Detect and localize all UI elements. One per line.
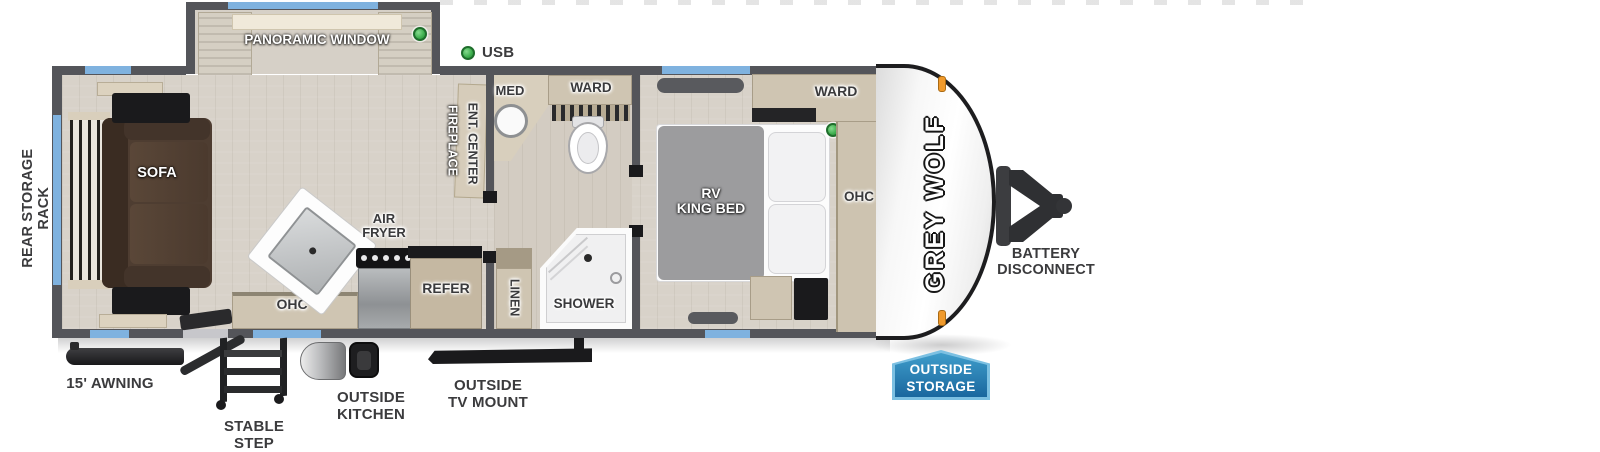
sofa-back [102, 118, 128, 288]
outside-tv-mount-label: OUTSIDE TV MOUNT [436, 378, 540, 412]
bottom-wall-right [228, 329, 890, 338]
refer-label: REFER [411, 281, 481, 296]
window-bottom-kitchen [253, 330, 321, 338]
sofa-label: SOFA [102, 166, 212, 181]
step-tread [224, 386, 282, 393]
entry-door-threshold [183, 329, 228, 338]
bedroom-shelf-bottom [688, 312, 738, 324]
usb-legend-dot [461, 46, 475, 60]
step-wheel [216, 400, 226, 410]
stable-step-label: STABLE STEP [204, 419, 304, 452]
case-inner [357, 351, 371, 370]
usb-legend-label: USB [482, 45, 522, 62]
bed-pillow-bottom [768, 204, 826, 274]
toilet-seat [577, 132, 599, 164]
bath-wall-left-lower [486, 263, 494, 329]
bath-wall-right-lower [632, 237, 640, 329]
bed-label-line1: RV [662, 186, 760, 201]
bath-ward-label: WARD [556, 81, 626, 95]
slideout-window [228, 2, 378, 9]
med-label: MED [486, 84, 534, 98]
burner [361, 255, 367, 261]
step-tread [224, 368, 282, 375]
hitch-tongue [994, 164, 1074, 248]
outside-tv-line2: TV MOUNT [436, 395, 540, 412]
outside-kitchen-label: OUTSIDE KITCHEN [308, 390, 434, 424]
bed-pillow-top [768, 132, 826, 202]
sofa-cushion-bottom [130, 204, 208, 264]
brand-logo: GREY WOLF [921, 93, 951, 313]
refer-countertop [408, 246, 482, 258]
window-bottom-rear [90, 330, 129, 338]
window-top-bedroom [662, 66, 750, 74]
bed-label-line2: KING BED [662, 201, 760, 216]
outside-kitchen-griddle [300, 342, 346, 380]
oven-front [358, 268, 414, 329]
outside-storage-badge: OUTSIDE STORAGE [892, 350, 990, 400]
battery-line2: DISCONNECT [996, 262, 1096, 278]
burner [394, 255, 400, 261]
air-fryer-line2: FRYER [348, 226, 420, 240]
bedroom-ward-label: WARD [800, 84, 872, 99]
linen-counter [496, 248, 532, 268]
range-burners [356, 248, 416, 268]
bath-wall-right-upper [632, 75, 640, 167]
fireplace-label: FIREPLACE [445, 96, 458, 186]
usb-indicator-dot-slideout [413, 27, 427, 41]
bed-label: RV KING BED [662, 186, 760, 215]
tv-cabinet-bottom [112, 287, 190, 315]
awning-label: 15' AWNING [60, 376, 160, 393]
battery-line1: BATTERY [996, 246, 1096, 262]
awning-bracket [70, 342, 79, 350]
rear-storage-rack-label: REAR STORAGE RACK [20, 128, 52, 288]
cropped-text-remnant [440, 0, 1310, 5]
sofa-arm-bottom [124, 266, 210, 288]
window-rear-wall [53, 115, 61, 285]
tv-cabinet-top [112, 93, 190, 123]
bedroom-door-jamb [629, 165, 643, 177]
bath-door-jamb [483, 191, 497, 203]
outside-storage-line1: OUTSIDE [892, 362, 990, 379]
air-fryer-label: AIR FRYER [348, 212, 420, 239]
ent-center-label: ENT. CENTER [465, 99, 478, 189]
burner [383, 255, 389, 261]
bath-door-jamb [483, 251, 497, 263]
panoramic-window-label: PANORAMIC WINDOW [228, 33, 406, 47]
end-shelf-bottom [99, 314, 167, 328]
step-tread [224, 350, 282, 357]
window-bottom-bedroom [705, 330, 750, 338]
outside-kitchen-case [349, 342, 379, 378]
bath-sink [494, 104, 528, 138]
step-wheel [274, 394, 284, 404]
shower-faucet-icon [610, 272, 622, 284]
window-top-rear [85, 66, 131, 74]
bedroom-shelf-top [657, 78, 744, 93]
marker-light-bottom [938, 310, 946, 326]
awning-roller [66, 348, 184, 365]
sofa: SOFA [102, 118, 212, 288]
battery-disconnect-label: BATTERY DISCONNECT [996, 246, 1096, 278]
bedroom-ward-underside [752, 108, 816, 122]
outside-storage-text: OUTSIDE STORAGE [892, 362, 990, 396]
air-fryer-line1: AIR [348, 212, 420, 226]
linen-label: LINEN [507, 271, 520, 325]
outside-storage-line2: STORAGE [892, 379, 990, 396]
burner [372, 255, 378, 261]
refer-cabinet: REFER [410, 258, 482, 329]
panoramic-window-sill [232, 14, 402, 30]
shower-drain [584, 254, 592, 262]
bedroom-nightstand [750, 276, 792, 320]
outside-tv-line1: OUTSIDE [436, 378, 540, 395]
tv-mount-stub [574, 338, 584, 350]
bedroom-dresser [794, 278, 828, 320]
marker-light-top [938, 76, 946, 92]
shower-label: SHOWER [546, 297, 622, 311]
floorplan-canvas: PANORAMIC WINDOW DINETTE SOFA OHC [0, 0, 1600, 452]
stable-step [216, 338, 294, 410]
